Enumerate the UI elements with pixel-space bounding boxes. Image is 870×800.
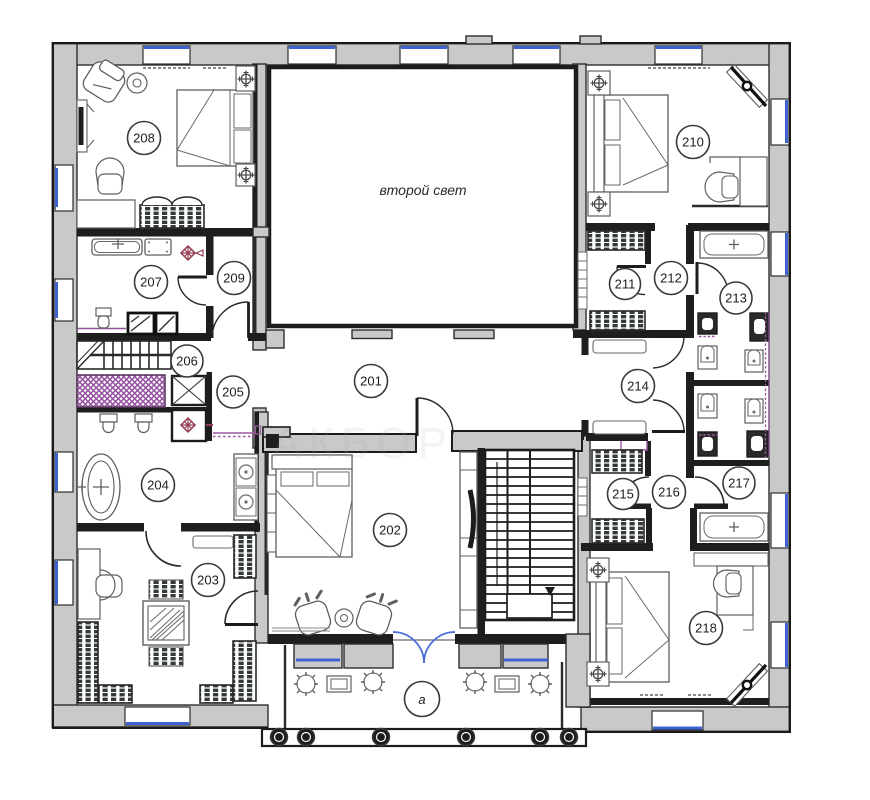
svg-text:203: 203	[197, 573, 219, 588]
svg-text:207: 207	[140, 275, 162, 290]
svg-text:a: a	[418, 692, 425, 707]
svg-text:205: 205	[222, 385, 244, 400]
svg-text:206: 206	[176, 354, 198, 369]
svg-text:209: 209	[223, 271, 245, 286]
svg-text:217: 217	[728, 476, 750, 491]
svg-text:второй свет: второй свет	[380, 182, 467, 198]
svg-text:218: 218	[695, 621, 717, 636]
svg-text:201: 201	[360, 374, 382, 389]
svg-text:208: 208	[133, 131, 155, 146]
svg-text:212: 212	[660, 271, 682, 286]
svg-text:214: 214	[627, 379, 649, 394]
svg-text:204: 204	[147, 478, 169, 493]
svg-text:202: 202	[379, 523, 401, 538]
svg-text:211: 211	[615, 277, 636, 292]
svg-text:216: 216	[658, 485, 680, 500]
svg-text:213: 213	[725, 291, 747, 306]
svg-text:210: 210	[682, 135, 704, 150]
svg-text:215: 215	[612, 487, 634, 502]
svg-text:АКБОР: АКБОР	[272, 419, 454, 468]
